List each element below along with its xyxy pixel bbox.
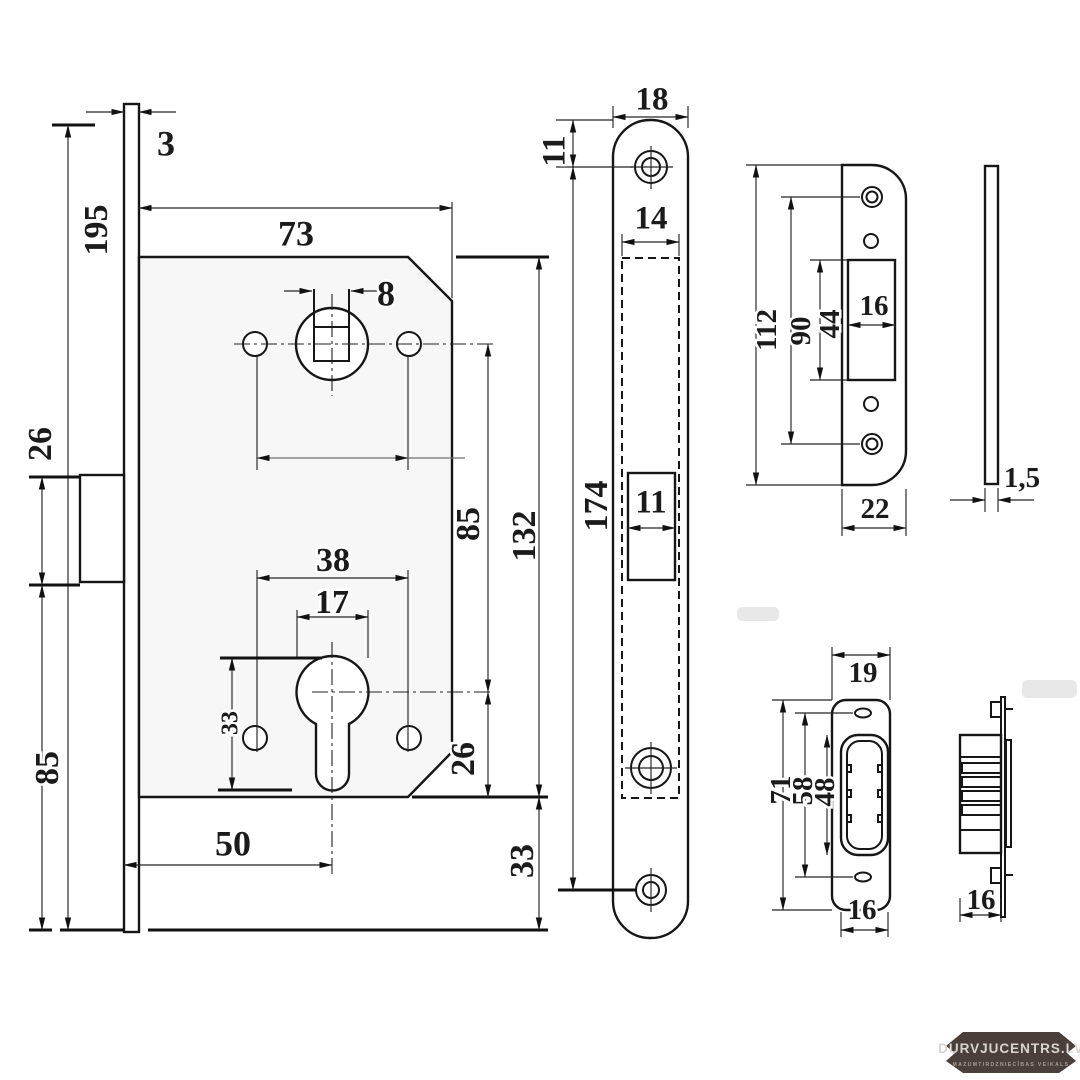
cylinder-screw-hole-right xyxy=(397,726,421,750)
dim-strike-height: 112 xyxy=(751,309,783,351)
strike-screw-hole-top xyxy=(862,187,882,207)
dim-screw-centers: 174 xyxy=(578,481,615,532)
faceplate-front-view: 18 11 14 11 174 xyxy=(537,82,688,938)
faceplate-edge xyxy=(124,104,139,932)
dim-latch-opening-width: 11 xyxy=(635,485,666,521)
strike-plate-side-view: 1,5 xyxy=(950,166,1040,512)
dim-cylinder-to-body-bottom: 26 xyxy=(445,742,482,776)
box-screw-top xyxy=(991,702,1001,717)
brand-badge[interactable]: DURVJUCENTRS.LV MAZUMTIRDZNIECĪBAS VEIKA… xyxy=(938,1032,1080,1073)
dim-cylinder-cutout-height: 33 xyxy=(217,711,243,735)
box-opening-outer xyxy=(841,735,888,855)
dim-box-opening-width: 16 xyxy=(848,894,877,926)
watermark-smudge xyxy=(1022,680,1077,698)
dim-lower-holes-spacing: 38 xyxy=(316,542,350,579)
strike-plate-view: 112 90 44 16 22 xyxy=(746,165,906,536)
dim-body-width: 73 xyxy=(278,214,314,254)
watermark-smudge xyxy=(737,607,779,621)
lock-body-front-view: 3 195 73 8 26 85 38 xyxy=(22,104,549,932)
dim-top-to-screw: 11 xyxy=(537,135,573,166)
dim-body-height: 132 xyxy=(506,511,543,562)
dim-centers-distance: 85 xyxy=(450,507,487,541)
strike-plate-edge xyxy=(985,166,998,484)
strike-box-side-view: 16 xyxy=(960,697,1013,922)
strike-pin-hole-top xyxy=(864,234,878,248)
dim-strike-cutout-width: 16 xyxy=(860,290,889,322)
dim-cylinder-diameter: 17 xyxy=(315,584,349,621)
dim-latch-to-bottom: 85 xyxy=(29,751,66,785)
dim-box-depth: 16 xyxy=(967,884,996,916)
dim-spindle-square: 8 xyxy=(377,274,395,314)
box-side-back xyxy=(1006,740,1011,847)
lock-technical-drawing-page: 3 195 73 8 26 85 38 xyxy=(0,0,1080,1080)
dim-strike-screw-centers: 90 xyxy=(785,317,817,346)
box-screw-bottom xyxy=(991,868,1001,883)
technical-drawing: 3 195 73 8 26 85 38 xyxy=(0,0,1080,1080)
dim-backset: 50 xyxy=(215,824,251,864)
dim-strike-cutout-height: 44 xyxy=(814,310,846,339)
dim-plate-width: 18 xyxy=(636,82,669,118)
dim-strike-width: 22 xyxy=(861,493,890,525)
dim-faceplate-thickness: 3 xyxy=(157,124,175,164)
strike-box-front-view: 19 71 58 48 16 xyxy=(765,647,890,937)
box-side-body xyxy=(960,735,1001,853)
latch-bolt xyxy=(80,475,124,582)
dim-box-opening-height: 48 xyxy=(809,778,841,807)
dim-faceplate-height: 195 xyxy=(78,205,115,256)
dim-box-top-width: 19 xyxy=(849,657,878,689)
cylinder-screw-hole-left xyxy=(243,726,267,750)
strike-screw-hole-bottom xyxy=(862,434,882,454)
dim-inner-width: 14 xyxy=(635,201,668,237)
dim-body-to-plate-end: 33 xyxy=(504,844,541,878)
strike-pin-hole-bottom xyxy=(864,397,878,411)
brand-title: DURVJUCENTRS.LV xyxy=(938,1041,1080,1056)
dim-strike-thickness: 1,5 xyxy=(1004,462,1040,494)
brand-tagline: MAZUMTIRDZNIECĪBAS VEIKALS xyxy=(953,1061,1070,1068)
dim-latch-height: 26 xyxy=(22,427,59,461)
